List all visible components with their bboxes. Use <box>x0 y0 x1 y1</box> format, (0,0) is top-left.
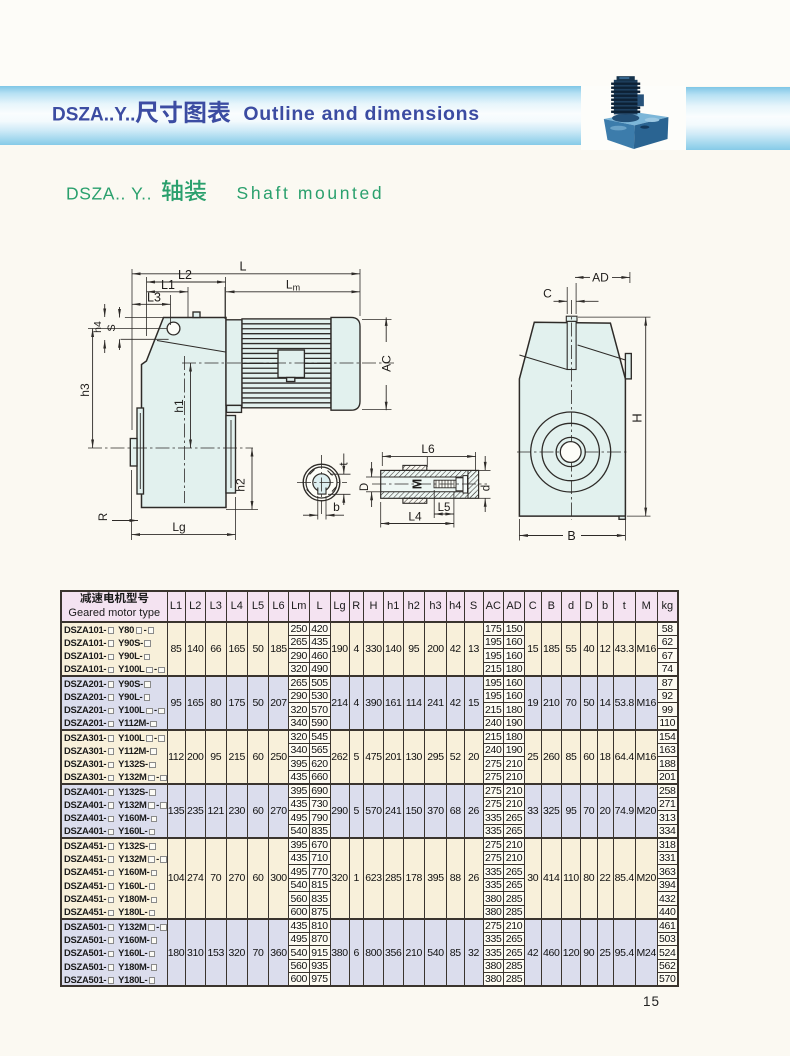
svg-text:d: d <box>481 485 493 491</box>
svg-text:D: D <box>359 483 371 491</box>
svg-text:L1: L1 <box>161 278 175 292</box>
svg-text:L3: L3 <box>147 291 161 305</box>
svg-text:AC: AC <box>380 355 394 372</box>
svg-text:h3: h3 <box>78 383 92 397</box>
svg-text:R: R <box>98 513 110 521</box>
svg-text:h4: h4 <box>92 321 104 333</box>
svg-text:b: b <box>333 500 340 514</box>
svg-text:t: t <box>339 462 351 466</box>
svg-text:S: S <box>106 324 118 331</box>
svg-text:AD: AD <box>592 270 609 284</box>
svg-text:h1: h1 <box>172 399 186 413</box>
svg-text:B: B <box>567 529 575 543</box>
svg-text:L4: L4 <box>408 510 422 524</box>
svg-text:L6: L6 <box>421 442 435 456</box>
svg-text:Lg: Lg <box>172 520 185 534</box>
svg-text:L: L <box>240 260 247 274</box>
svg-text:h2: h2 <box>234 478 248 492</box>
svg-text:M: M <box>411 479 425 489</box>
svg-text:Lm: Lm <box>286 278 300 293</box>
svg-text:L2: L2 <box>178 268 192 282</box>
svg-text:L5: L5 <box>438 502 451 514</box>
svg-text:C: C <box>543 287 552 301</box>
svg-text:H: H <box>630 413 645 422</box>
